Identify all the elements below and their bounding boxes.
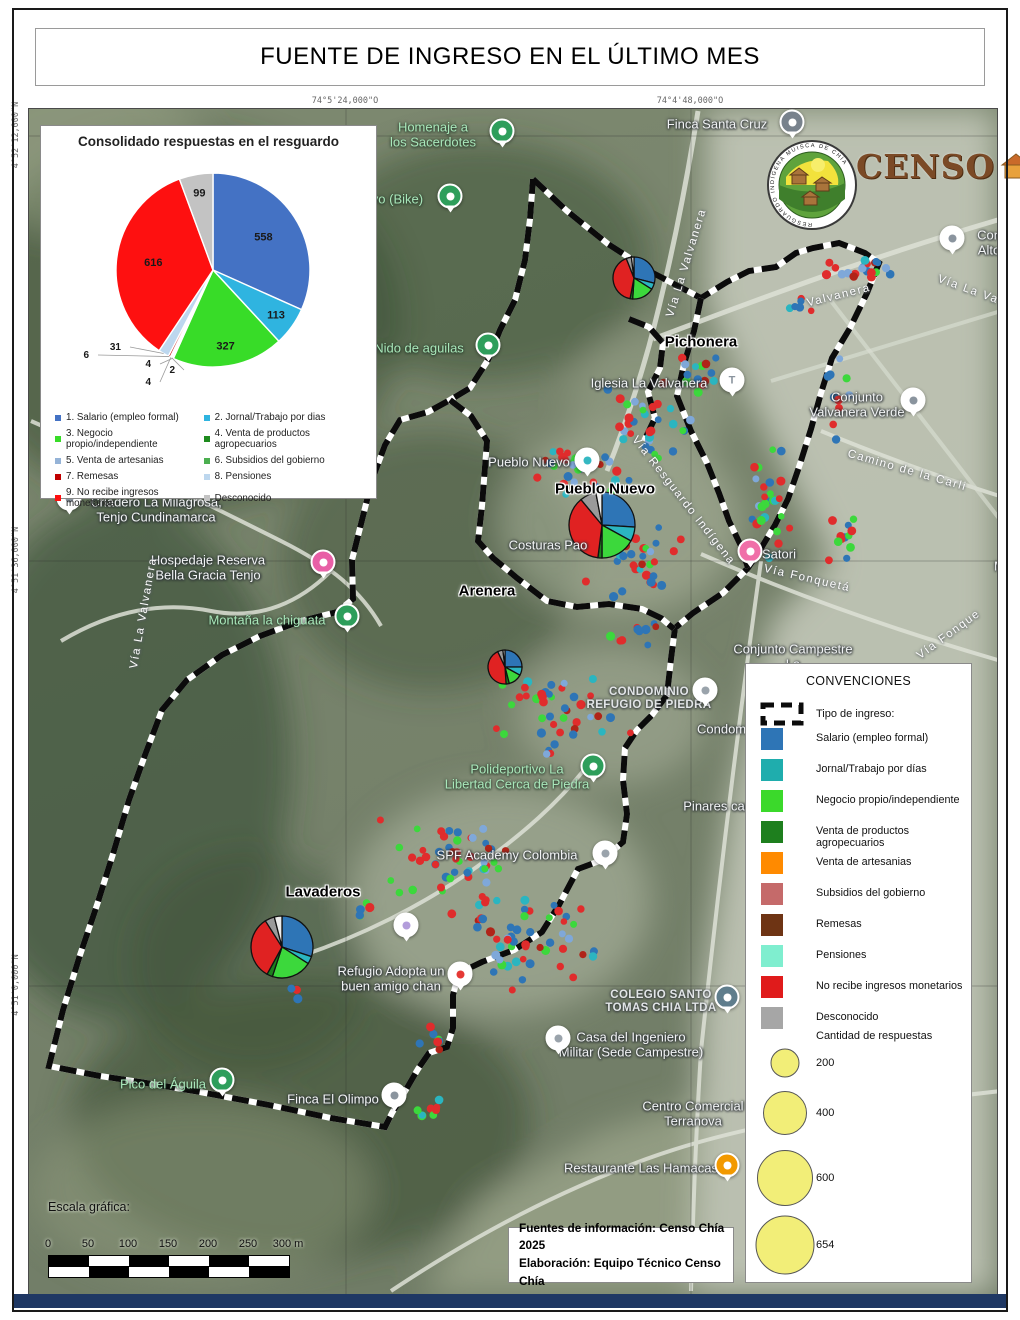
boundary-legend-icon: [759, 700, 805, 728]
map-label: Camino de la Carli: [846, 448, 968, 494]
scale-bar-group: Escala gráfica: 050100150200250300 m: [48, 1200, 348, 1278]
sources-line2: Elaboración: Equipo Técnico Censo Chía: [519, 1255, 733, 1290]
map-label: Pico del Águila: [120, 1078, 206, 1093]
map-label: SPF Academy Colombia: [437, 849, 578, 864]
map-label: Homenaje alos Sacerdotes: [390, 120, 476, 149]
map-label: Condomi: [697, 723, 749, 738]
coordinate-label-left-3: 4°51'0,000"N: [11, 954, 21, 1015]
inset-legend-swatch: [204, 474, 210, 480]
inset-legend-item: 2. Jornal/Trabajo por dias: [204, 412, 370, 423]
map-label: Valvanera: [806, 282, 873, 310]
legend-swatch: [761, 883, 783, 905]
map-label: Refugio Adopta unbuen amigo chan: [338, 964, 445, 993]
scale-ticks: 050100150200250300 m: [48, 1238, 348, 1252]
legend-title: CONVENCIONES: [746, 674, 971, 688]
coordinate-label-left-2: 4°51'36,000"N: [11, 527, 21, 594]
scale-tick: 50: [82, 1238, 94, 1250]
coordinate-label-top-1: 74°5'24,000"O: [312, 96, 379, 106]
inset-legend-item: 3. Negocio propio/independiente: [55, 428, 200, 450]
censo-logo-text: CENSO: [856, 147, 995, 186]
map-pin: [940, 226, 965, 251]
map-label: ConAlto: [977, 228, 998, 257]
size-circle: [756, 1216, 815, 1275]
inset-legend-item: 4. Venta de productos agropecuarios: [204, 428, 370, 450]
inset-legend-swatch: [55, 495, 61, 501]
size-circle-label: 200: [816, 1057, 834, 1069]
size-circle-label: 600: [816, 1172, 834, 1184]
inset-legend-swatch: [55, 474, 61, 480]
legend-swatch: [761, 852, 783, 874]
svg-text:327: 327: [216, 341, 234, 353]
svg-text:616: 616: [144, 257, 162, 269]
map-label: Vía Resguardo Indígena: [629, 434, 738, 568]
size-circle: [757, 1150, 813, 1206]
map-label: Vía Fonque: [915, 608, 984, 663]
legend-subtitle: Tipo de ingreso:: [816, 708, 894, 720]
census-map-sheet: FUENTE DE INGRESO EN EL ÚLTIMO MES 74°5'…: [0, 0, 1020, 1320]
map-label: Nido de aguilas: [374, 342, 464, 357]
map-label: Ma: [994, 560, 998, 575]
inset-chart-legend: 1. Salario (empleo formal)2. Jornal/Trab…: [55, 412, 370, 509]
inset-pie-chart: 55811332742463161699: [41, 152, 376, 410]
size-circle: [763, 1091, 807, 1135]
svg-text:4: 4: [145, 377, 151, 388]
map-pin: [715, 1153, 740, 1178]
map-pin: [382, 1083, 407, 1108]
map-label: Finca Santa Cruz: [667, 118, 767, 133]
scale-tick: 150: [159, 1238, 177, 1250]
map-label: Costuras Pao: [509, 539, 588, 554]
legend-swatch: [761, 914, 783, 936]
map-pin: [438, 184, 463, 209]
svg-text:2: 2: [169, 365, 175, 376]
map-label: Pueblo Nuevo: [555, 482, 655, 499]
inset-legend-swatch: [55, 415, 61, 421]
sources-box: Fuentes de información: Censo Chía 2025 …: [508, 1227, 734, 1283]
inset-legend-swatch: [55, 458, 61, 464]
map-pin: [335, 604, 360, 629]
scale-tick: 200: [199, 1238, 217, 1250]
map-label: Vía La Va: [936, 273, 998, 307]
inset-chart-panel: Consolidado respuestas en el resguardo 5…: [40, 125, 377, 499]
legend-swatch: [761, 1007, 783, 1029]
scale-bar: [48, 1255, 290, 1278]
inset-legend-item: 8. Pensiones: [204, 471, 370, 482]
map-label: Vía La Valvanera: [128, 556, 160, 670]
legend-sizes-title: Cantidad de respuestas: [816, 1030, 932, 1042]
legend-swatch: [761, 728, 783, 750]
censo-logo: CENSO: [856, 146, 1020, 186]
scale-label: Escala gráfica:: [48, 1200, 348, 1214]
svg-text:4: 4: [145, 359, 151, 370]
map-label: ivo (Bike): [369, 193, 423, 208]
inset-legend-swatch: [204, 495, 210, 501]
map-pin: [546, 1026, 571, 1051]
svg-text:31: 31: [110, 342, 122, 353]
scale-tick: 250: [239, 1238, 257, 1250]
map-pin: [715, 985, 740, 1010]
coordinate-label-left-1: 4°52'12,000"N: [11, 102, 21, 169]
inset-legend-item: Desconocido: [204, 487, 370, 509]
bottom-bar: [12, 1294, 1008, 1308]
map-pin: [738, 539, 763, 564]
svg-text:99: 99: [193, 188, 205, 200]
title-box: FUENTE DE INGRESO EN EL ÚLTIMO MES: [35, 28, 985, 86]
scale-tick: 300 m: [273, 1238, 304, 1250]
map-label: Montaña la chiguata: [208, 614, 325, 629]
map-label: Lavaderos: [285, 885, 360, 902]
legend-swatch: [761, 821, 783, 843]
censo-logo-house-icon: [999, 146, 1020, 186]
map-label: Hospedaje ReservaBella Gracia Tenjo: [151, 553, 265, 582]
inset-legend-swatch: [204, 458, 210, 464]
inset-legend-swatch: [55, 436, 61, 442]
inset-legend-item: 7. Remesas: [55, 471, 200, 482]
map-pin: [476, 333, 501, 358]
map-pin: [780, 110, 805, 135]
map-pin: [901, 388, 926, 413]
inset-legend-item: 9. No recibe ingresos monetarios: [55, 487, 200, 509]
map-pin: [575, 448, 600, 473]
map-label: Satori: [762, 548, 796, 563]
legend-panel: CONVENCIONES Tipo de ingreso: Salario (e…: [745, 663, 972, 1283]
inset-legend-swatch: [204, 415, 210, 421]
map-label: Pichonera: [665, 335, 738, 352]
map-pin: [593, 841, 618, 866]
scale-tick: 0: [45, 1238, 51, 1250]
legend-swatch: [761, 976, 783, 998]
map-pin: [490, 119, 515, 144]
legend-swatch: [761, 790, 783, 812]
map-label: Vía La Valvanera: [664, 207, 709, 319]
map-pin: [210, 1068, 235, 1093]
inset-legend-item: 1. Salario (empleo formal): [55, 412, 200, 423]
map-pin: [311, 550, 336, 575]
resguardo-logo: RESGUARDO INDÍGENA MUISCA DE CHÍA: [766, 139, 858, 231]
map-pin: [693, 678, 718, 703]
map-label: Finca El Olimpo: [287, 1093, 379, 1108]
map-pin: [394, 913, 419, 938]
inset-legend-item: 6. Subsidios del gobierno: [204, 455, 370, 466]
inset-chart-title: Consolidado respuestas en el resguardo: [41, 134, 376, 149]
svg-text:558: 558: [254, 231, 272, 243]
map-pin: T: [720, 368, 745, 393]
map-label: Polideportivo LaLibertad Cerca de Piedra: [445, 762, 590, 791]
map-label: Vía Fonquetá: [763, 563, 852, 595]
map-label: Pueblo Nuevo: [488, 456, 570, 471]
legend-swatch: [761, 759, 783, 781]
map-label: Centro ComercialTerranova: [642, 1099, 743, 1128]
map-label: Arenera: [459, 584, 516, 601]
map-pin: [448, 962, 473, 987]
map-label: Restaurante Las Hamacas: [564, 1162, 718, 1177]
size-circle: [771, 1049, 800, 1078]
map-title: FUENTE DE INGRESO EN EL ÚLTIMO MES: [260, 43, 760, 71]
scale-tick: 100: [119, 1238, 137, 1250]
map-pin: [581, 754, 606, 779]
svg-text:113: 113: [267, 309, 285, 321]
map-label: ConjuntoValvanera Verde: [809, 390, 904, 419]
map-label: Casa del IngenieroMilitar (Sede Campestr…: [559, 1030, 704, 1059]
inset-legend-swatch: [204, 436, 210, 442]
map-label: Iglesia La Valvanera: [591, 377, 708, 392]
size-circle-label: 400: [816, 1107, 834, 1119]
sources-line1: Fuentes de información: Censo Chía 2025: [519, 1220, 733, 1255]
size-circle-label: 654: [816, 1239, 834, 1251]
svg-text:6: 6: [83, 350, 89, 361]
map-label: COLEGIO SANTOTOMAS CHIA LTDA: [605, 989, 716, 1015]
coordinate-label-top-2: 74°4'48,000"O: [657, 96, 724, 106]
legend-swatch: [761, 945, 783, 967]
inset-legend-item: 5. Venta de artesanias: [55, 455, 200, 466]
